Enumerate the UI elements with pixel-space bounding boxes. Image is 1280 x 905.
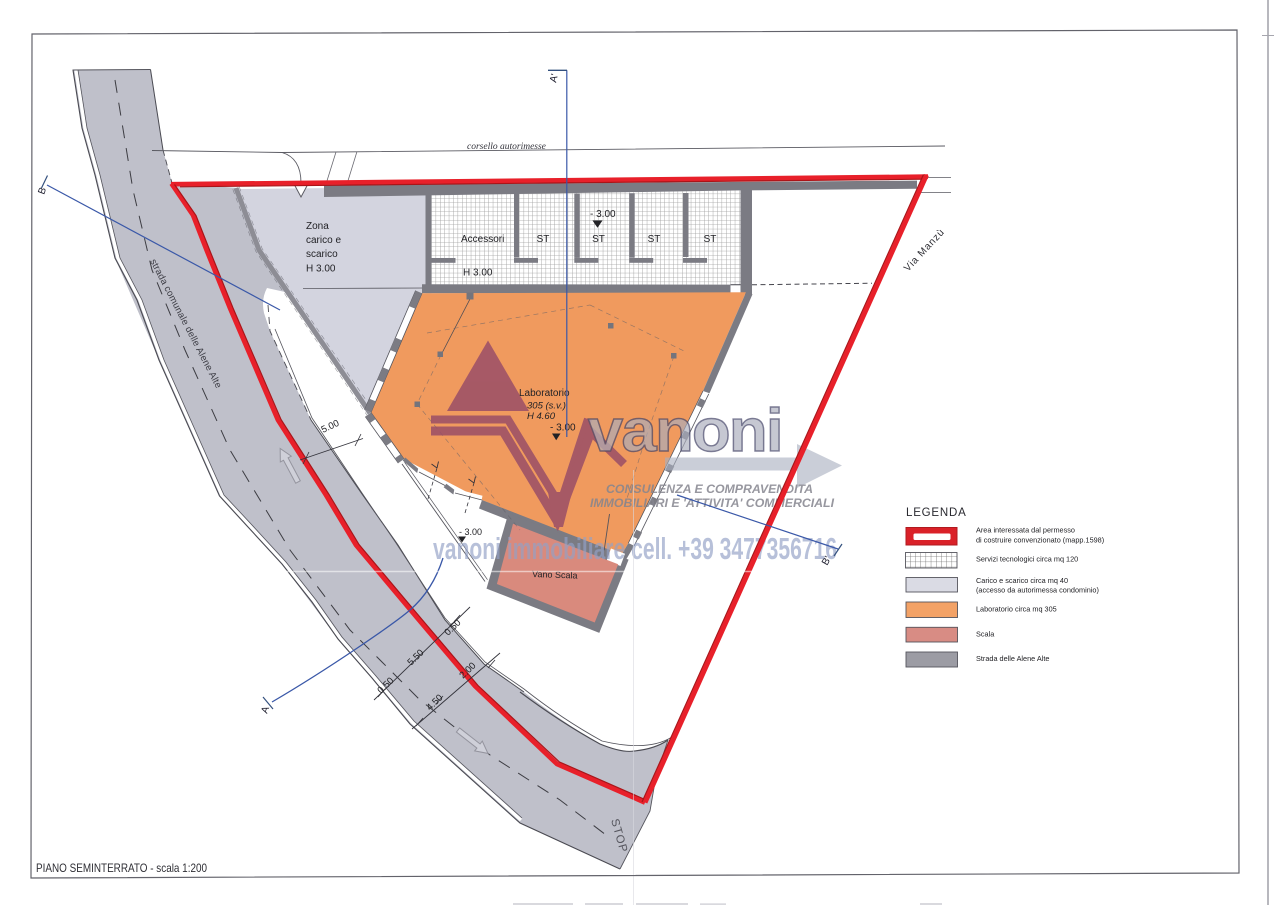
svg-text:H 3.00: H 3.00 (306, 264, 336, 275)
svg-text:Servizi tecnologici circa mq 1: Servizi tecnologici circa mq 120 (976, 555, 1078, 564)
svg-text:ST: ST (592, 234, 605, 245)
svg-text:carico e: carico e (306, 235, 341, 246)
svg-text:Laboratorio circa mq 305: Laboratorio circa mq 305 (976, 605, 1057, 614)
svg-text:Accessori: Accessori (461, 234, 504, 245)
svg-text:ST: ST (648, 234, 661, 245)
svg-text:H 4.60: H 4.60 (527, 411, 556, 422)
svg-text:vanoni immobiliare cell. +: vanoni immobiliare cell. +39 3477356716 (433, 531, 837, 566)
svg-text:scarico: scarico (306, 249, 338, 260)
svg-text:corsello autorimesse: corsello autorimesse (467, 142, 546, 152)
svg-text:- 3.00: - 3.00 (550, 423, 576, 434)
svg-text:(accesso da autorimessa condom: (accesso da autorimessa condominio) (976, 586, 1099, 595)
svg-text:ST: ST (704, 234, 717, 245)
svg-text:Zona: Zona (306, 221, 329, 232)
svg-text:H 3.00: H 3.00 (463, 268, 493, 279)
svg-text:ST: ST (537, 234, 550, 245)
svg-text:Strada delle Alene Alte: Strada delle Alene Alte (976, 654, 1049, 663)
svg-text:vanoni: vanoni (588, 397, 782, 464)
svg-text:305 (s.v.): 305 (s.v.) (527, 401, 566, 412)
svg-text:- 3.00: - 3.00 (459, 527, 482, 537)
svg-text:- 3.00: - 3.00 (590, 209, 616, 220)
svg-text:Carico e scarico circa mq 40: Carico e scarico circa mq 40 (976, 576, 1068, 585)
svg-text:Area interessata dal permesso: Area interessata dal permesso (976, 526, 1075, 535)
svg-text:Scala: Scala (976, 630, 995, 639)
svg-text:IMMOBILIARI E 'ATTIVITA' COM: IMMOBILIARI E 'ATTIVITA' COMMERCIALI (590, 496, 835, 510)
svg-text:LEGENDA: LEGENDA (906, 507, 967, 519)
svg-text:di costruire convenzionato (ma: di costruire convenzionato (mapp.1598) (976, 536, 1104, 545)
svg-text:Laboratorio: Laboratorio (519, 388, 570, 399)
svg-text:PIANO SEMINTERRATO - scala 1:2: PIANO SEMINTERRATO - scala 1:200 (36, 861, 207, 875)
